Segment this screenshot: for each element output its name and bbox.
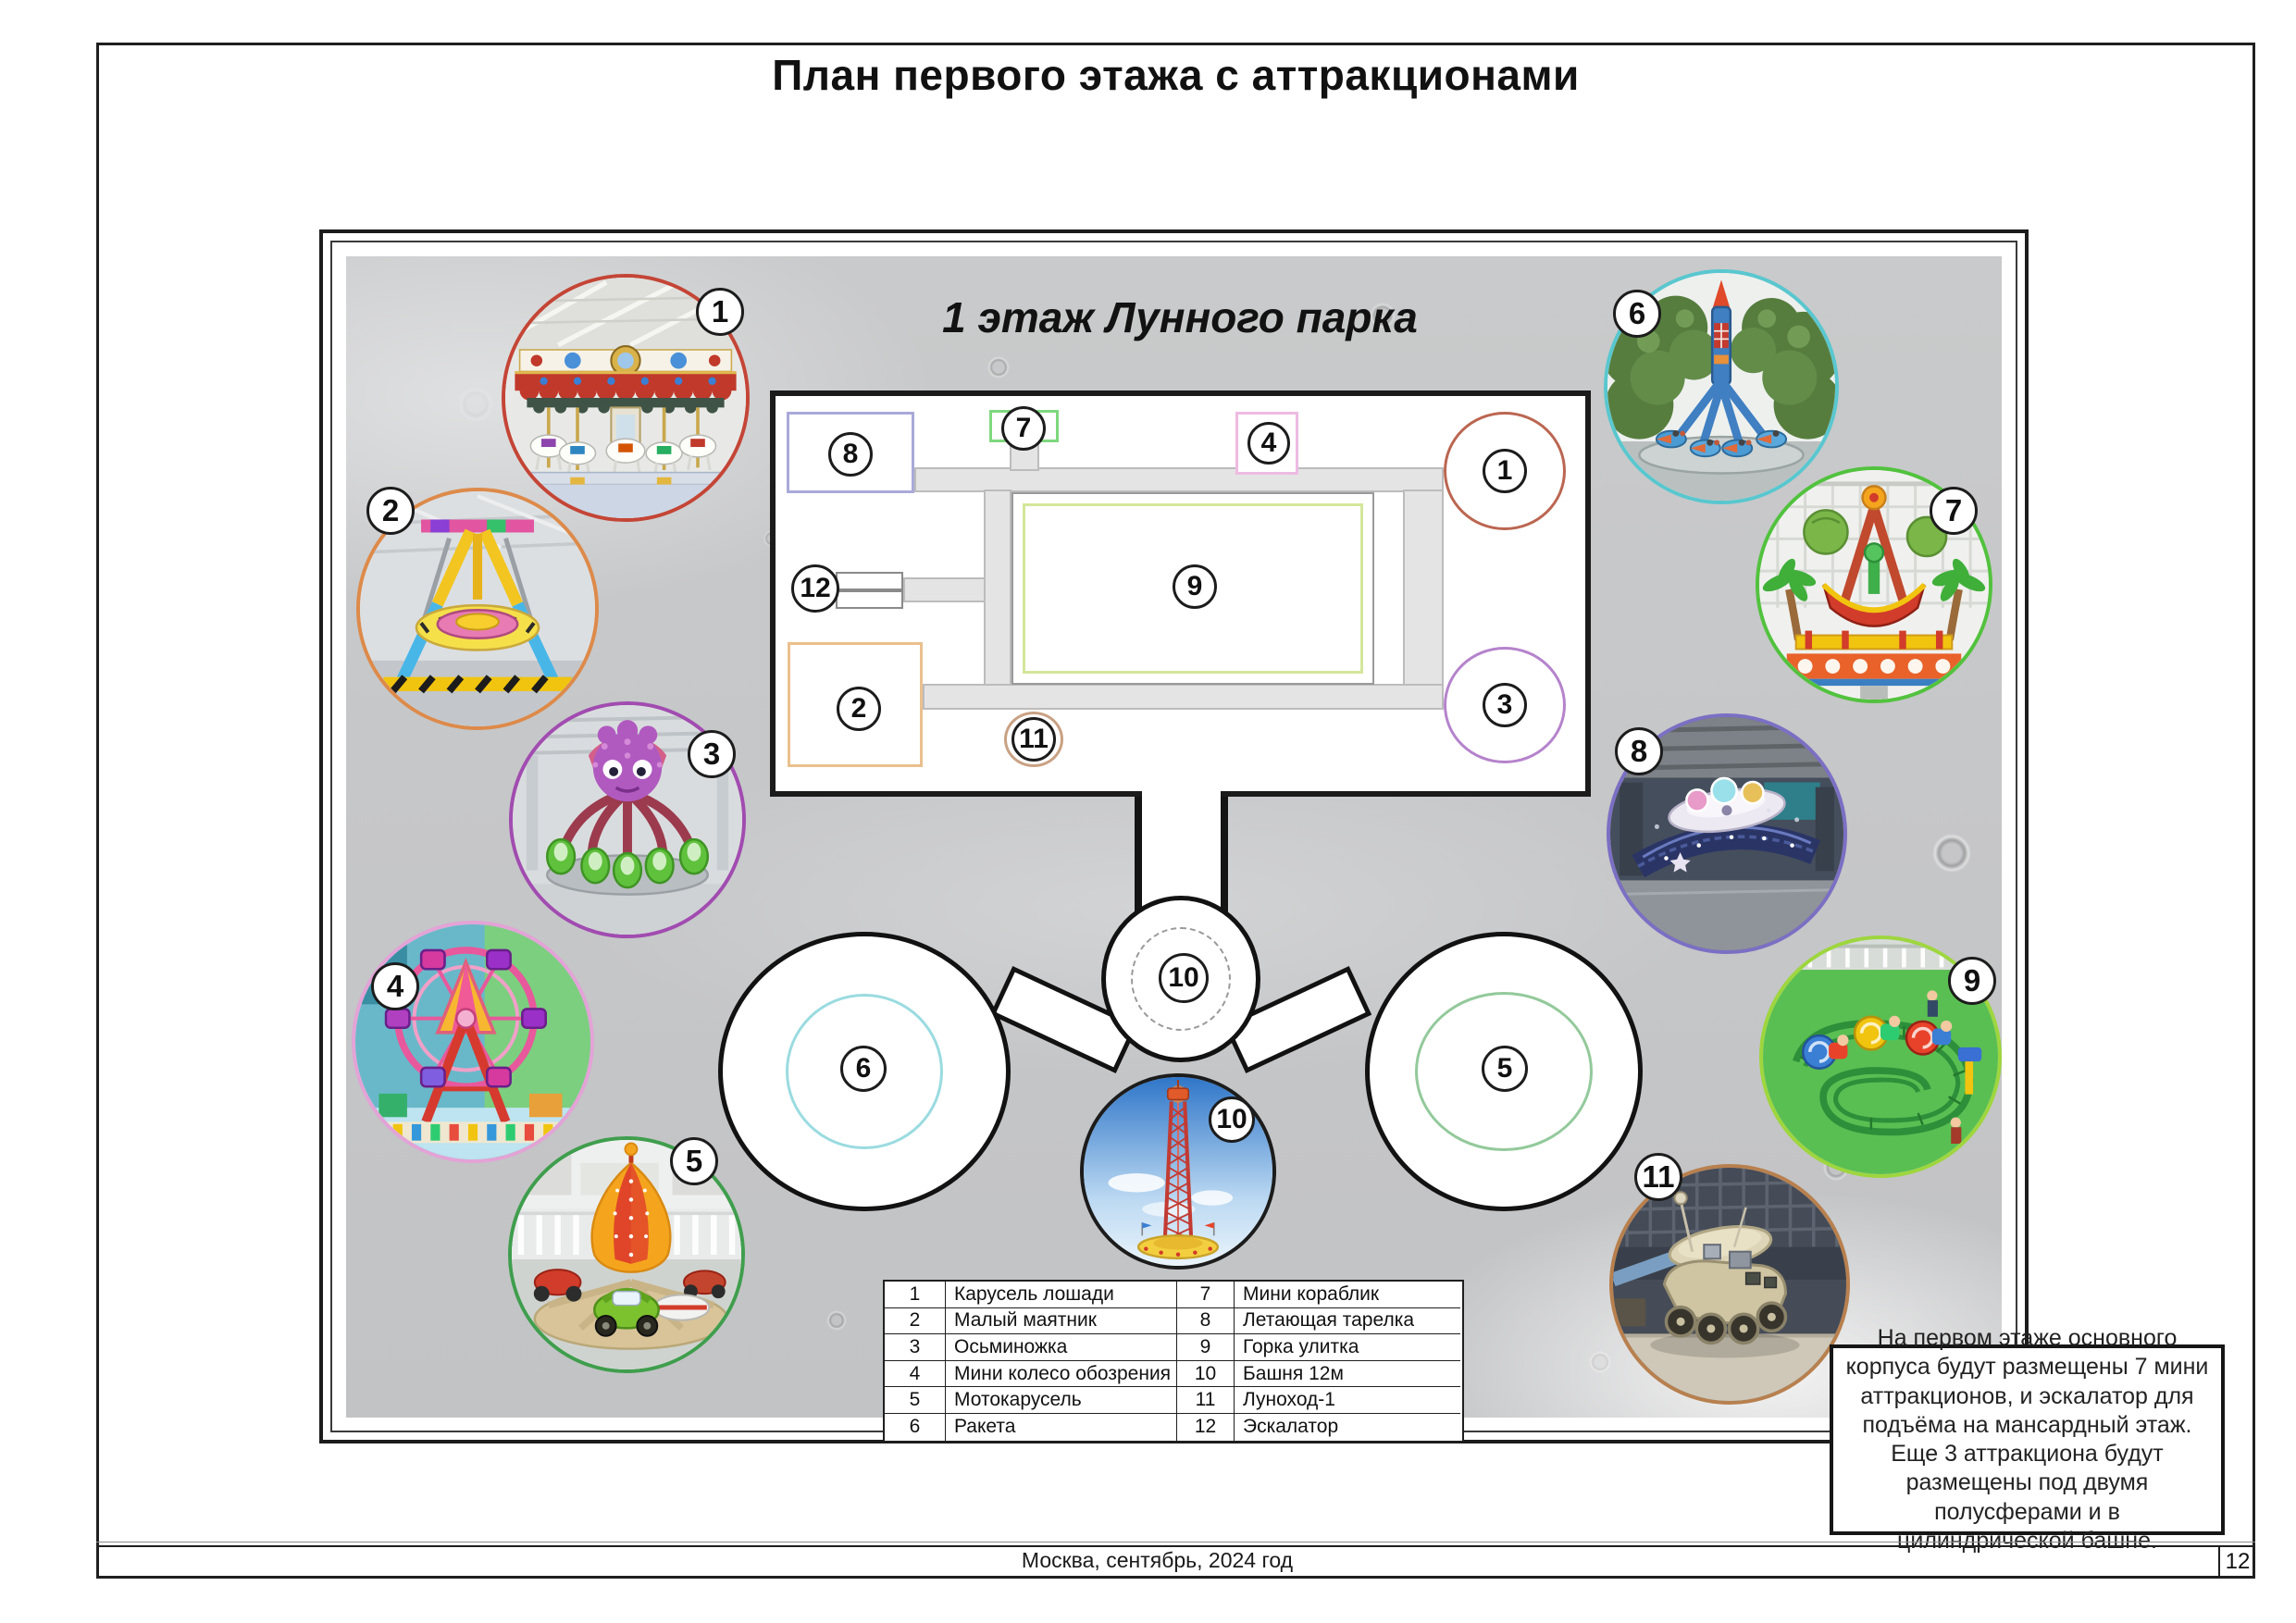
hub-corridor-wall-right [1221, 791, 1228, 925]
legend-cell: 5 [885, 1387, 946, 1414]
plan-badge-11: 11 [1011, 717, 1056, 762]
plan-badge-2: 2 [837, 687, 881, 731]
legend-cell: Мини колесо обозрения [946, 1361, 1177, 1388]
legend-cell: 11 [1177, 1387, 1235, 1414]
legend-cell: Мини кораблик [1235, 1282, 1460, 1308]
dome-badge-6: 6 [840, 1046, 887, 1092]
legend-cell: Осьминожка [946, 1334, 1177, 1361]
legend-cell: Летающая тарелка [1235, 1308, 1460, 1335]
photo-badge-4: 4 [371, 962, 419, 1010]
ferris-wheel-illustration [355, 924, 590, 1159]
legend-cell: 1 [885, 1282, 946, 1308]
hub-corridor-wall-left [1135, 791, 1142, 925]
plan-badge-12: 12 [791, 564, 839, 613]
footer-divider-thin [96, 1542, 2255, 1542]
legend-table: 1 Карусель лошади 7 Мини кораблик 2 Малы… [883, 1280, 1464, 1443]
legend-cell: Ракета [946, 1414, 1177, 1441]
hub-badge-10: 10 [1159, 953, 1209, 1003]
plan-badge-1: 1 [1483, 449, 1527, 493]
photo-badge-7: 7 [1930, 487, 1978, 535]
plan-badge-3: 3 [1483, 683, 1527, 727]
legend-cell: 4 [885, 1361, 946, 1388]
photo-badge-10: 10 [1209, 1096, 1255, 1143]
page-number: 12 [2218, 1545, 2255, 1579]
plan-badge-7: 7 [1001, 406, 1046, 451]
legend-cell: 10 [1177, 1361, 1235, 1388]
photo-mini-ferris-wheel [352, 921, 594, 1163]
photo-badge-2: 2 [366, 487, 415, 535]
lunokhod-illustration [1613, 1168, 1846, 1401]
photo-lunokhod [1609, 1164, 1850, 1405]
slide-page: План первого этажа с аттракционами 1 эта… [0, 0, 2296, 1623]
legend-cell: 9 [1177, 1334, 1235, 1361]
plan-badge-8: 8 [828, 432, 873, 477]
plan-badge-4: 4 [1247, 422, 1290, 465]
plan-badge-9: 9 [1173, 564, 1217, 609]
legend-cell: Малый маятник [946, 1308, 1177, 1335]
photo-badge-8: 8 [1615, 727, 1663, 775]
photo-badge-6: 6 [1613, 290, 1661, 338]
photo-badge-9: 9 [1948, 957, 1996, 1005]
photo-badge-3: 3 [688, 730, 736, 778]
photo-badge-11: 11 [1634, 1153, 1682, 1201]
legend-cell: 6 [885, 1414, 946, 1441]
legend-cell: Луноход-1 [1235, 1387, 1460, 1414]
legend-cell: 7 [1177, 1282, 1235, 1308]
legend-cell: Башня 12м [1235, 1361, 1460, 1388]
legend-cell: 3 [885, 1334, 946, 1361]
legend-cell: 2 [885, 1308, 946, 1335]
footer-text: Москва, сентябрь, 2024 год [96, 1548, 2218, 1573]
legend-cell: 12 [1177, 1414, 1235, 1441]
legend-cell: 8 [1177, 1308, 1235, 1335]
legend-cell: Эскалатор [1235, 1414, 1460, 1441]
plan-title: 1 этаж Лунного парка [810, 292, 1550, 342]
page-title: План первого этажа с аттракционами [96, 50, 2255, 100]
photo-badge-5: 5 [670, 1137, 718, 1185]
note-box: На первом этаже основного корпуса будут … [1830, 1344, 2225, 1535]
legend-cell: Карусель лошади [946, 1282, 1177, 1308]
photo-badge-1: 1 [696, 288, 744, 336]
legend-cell: Горка улитка [1235, 1334, 1460, 1361]
dome-badge-5: 5 [1482, 1046, 1528, 1092]
building-doorway [1142, 789, 1221, 799]
legend-cell: Мотокарусель [946, 1387, 1177, 1414]
